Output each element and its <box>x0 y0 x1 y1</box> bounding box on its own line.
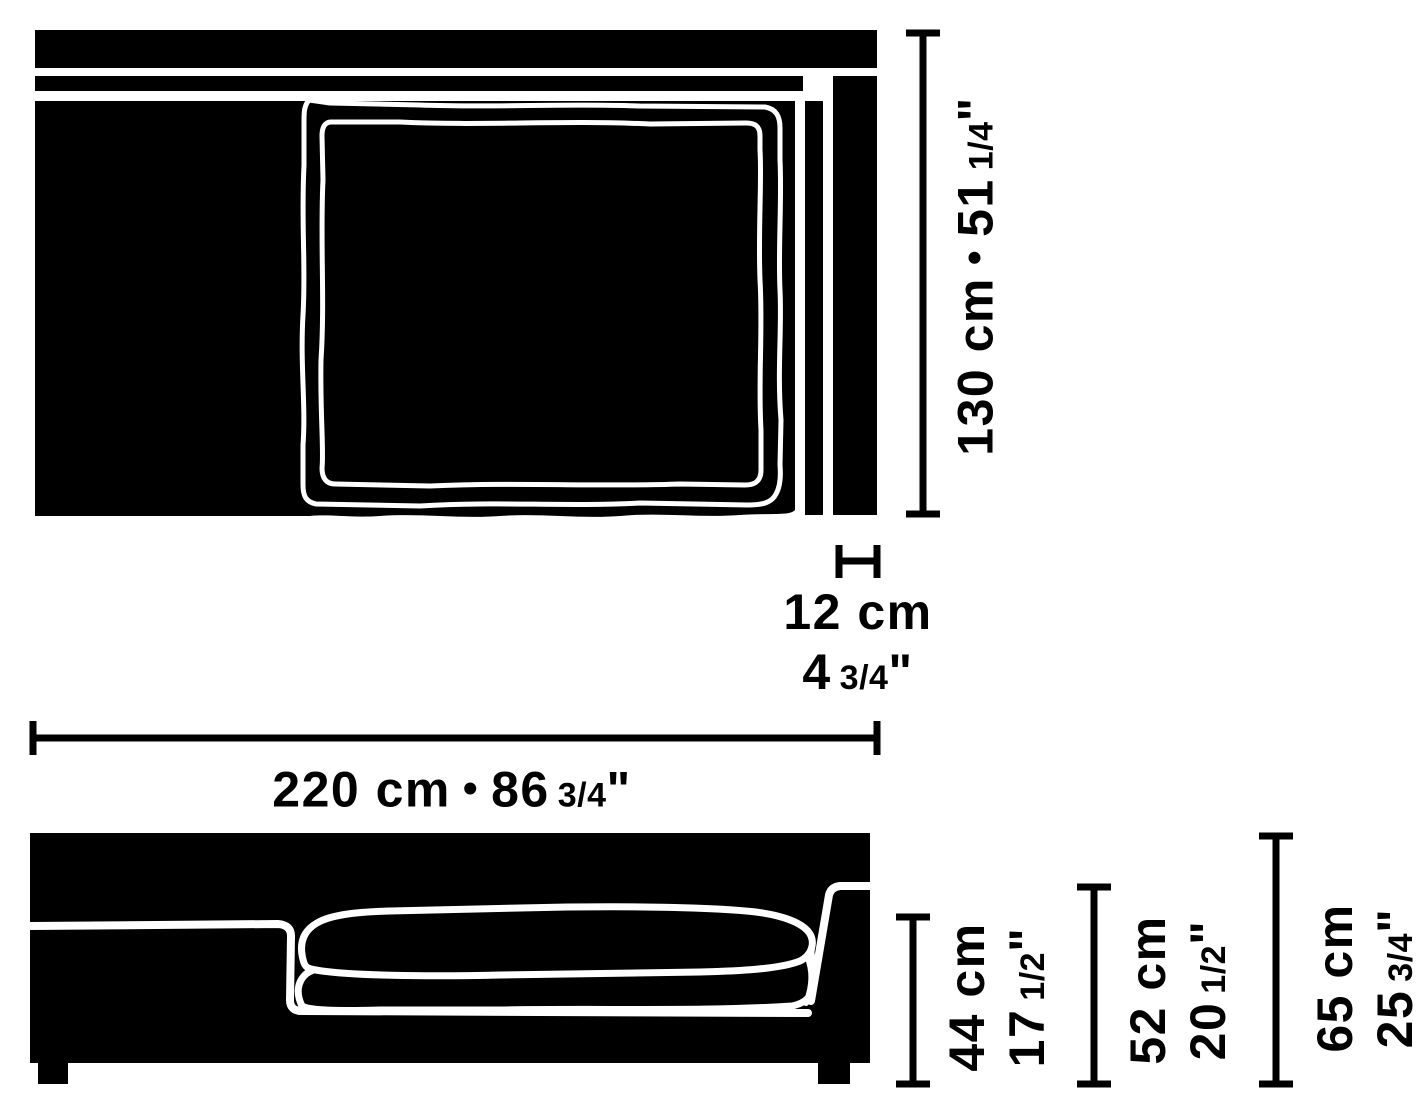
width-inch-mark: " <box>606 762 631 818</box>
seat-height-cm-line: 44 cm <box>937 922 997 1071</box>
back-height-inch-frac: 1/2 <box>1195 945 1233 994</box>
depth-inch-whole: 51 <box>948 178 1004 237</box>
dim-line-seat-height <box>896 917 930 1084</box>
width-separator: • <box>463 765 479 812</box>
depth-separator: • <box>951 249 998 265</box>
armrest-width-cm-value: 12 cm <box>783 584 932 640</box>
seat-height-cm-value: 44 cm <box>939 922 995 1071</box>
back-height-inch-line: 201/2" <box>1178 915 1244 1064</box>
overall-height-inch-line: 253/4" <box>1365 903 1425 1052</box>
seat-height-inch-line: 171/2" <box>997 922 1063 1071</box>
dim-line-depth <box>906 33 940 514</box>
dim-line-armrest-width <box>839 545 877 578</box>
dim-line-overall-height <box>1259 836 1293 1084</box>
armrest-width-inch-line: 43/4" <box>783 642 932 708</box>
armrest-width-cm-line: 12 cm <box>783 582 932 642</box>
dim-line-width <box>33 721 877 755</box>
side-view <box>30 833 870 1084</box>
armrest-width-inch-whole: 4 <box>802 644 831 700</box>
top-view <box>35 30 877 517</box>
sofa-dimension-diagram: 130 cm•511/4" 12 cm 43/4" 220 cm•863/4" … <box>0 0 1425 1112</box>
backrest-bar <box>35 30 877 68</box>
overall-height-inch-whole: 25 <box>1367 990 1423 1049</box>
overall-height-cm-value: 65 cm <box>1307 903 1363 1052</box>
back-height-cm-line: 52 cm <box>1118 915 1178 1064</box>
seat-platform <box>35 101 795 517</box>
depth-inch-frac: 1/4 <box>963 122 1001 171</box>
right-arm-strip <box>833 76 877 515</box>
overall-height-inch-mark: " <box>1367 908 1423 933</box>
width-inch-whole: 86 <box>491 762 550 818</box>
seat-height-inch-mark: " <box>999 927 1055 952</box>
back-height-inch-whole: 20 <box>1180 1002 1236 1061</box>
seat-edge-strip <box>805 101 823 515</box>
seat-cushion-top <box>302 907 813 976</box>
armrest-width-inch-frac: 3/4 <box>840 659 889 697</box>
back-height-cm-value: 52 cm <box>1120 915 1176 1064</box>
depth-inch-mark: " <box>948 96 1004 121</box>
seat-height-inch-whole: 17 <box>999 1009 1055 1068</box>
depth-cm-value: 130 cm <box>948 277 1004 456</box>
dim-label-back-height: 52 cm 201/2" <box>1118 915 1244 1064</box>
seat-height-inch-frac: 1/2 <box>1014 952 1052 1001</box>
dim-line-back-height <box>1077 887 1111 1084</box>
dim-label-overall-height: 65 cm 253/4" <box>1305 903 1425 1052</box>
dim-label-armrest-width: 12 cm 43/4" <box>783 582 932 708</box>
back-cushion-strip <box>35 76 803 91</box>
width-inch-frac: 3/4 <box>558 777 607 815</box>
back-height-inch-mark: " <box>1180 920 1236 945</box>
armrest-width-inch-mark: " <box>888 644 913 700</box>
dim-label-depth: 130 cm•511/4" <box>945 96 1012 455</box>
dim-label-width: 220 cm•863/4" <box>272 759 631 826</box>
width-cm-value: 220 cm <box>272 762 451 818</box>
dim-label-seat-height: 44 cm 171/2" <box>937 922 1063 1071</box>
overall-height-cm-line: 65 cm <box>1305 903 1365 1052</box>
overall-height-inch-frac: 3/4 <box>1382 933 1420 982</box>
